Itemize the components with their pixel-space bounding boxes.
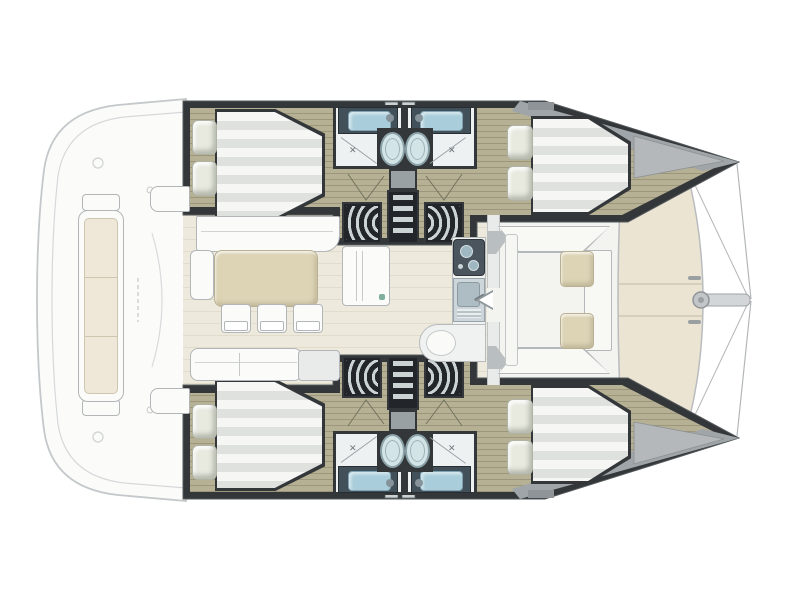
port-fwd-shower-drain-icon: ✕ xyxy=(448,146,456,155)
catamaran-floorplan: ✕ ✕ ✕ ✕ xyxy=(0,0,800,600)
cabinet-divider-2 xyxy=(362,251,363,301)
salon-aft-sofa xyxy=(190,348,302,381)
nav-seat xyxy=(298,350,340,381)
port-companionway-landing xyxy=(389,169,417,190)
cleat-lower xyxy=(688,320,701,324)
port-fwd-toilet xyxy=(405,132,430,166)
starboard-companionway-landing xyxy=(389,410,417,431)
starboard-ladder-rungs xyxy=(393,361,413,405)
starboard-fwd-pillow-2 xyxy=(507,440,533,475)
cabinet-latch xyxy=(379,294,385,300)
galley-dish-rack xyxy=(457,309,481,318)
door-arrow-icon xyxy=(479,292,493,308)
dinette-sofa-arm xyxy=(190,250,214,300)
starboard-deck-hatch xyxy=(528,490,554,498)
starboard-fwd-toilet xyxy=(405,434,430,468)
bench-cushion-seam-2 xyxy=(85,336,117,337)
galley-stove xyxy=(453,239,485,276)
port-aft-pillow-1 xyxy=(192,120,217,155)
starboard-curved-steps-aft xyxy=(342,356,382,398)
cleat-upper xyxy=(688,276,701,280)
stove-knob xyxy=(458,264,463,269)
starboard-fwd-sink xyxy=(420,471,463,491)
aft-sofa-divider-1 xyxy=(239,353,240,376)
port-aft-toilet xyxy=(380,132,405,166)
port-aft-berth xyxy=(215,109,325,221)
starboard-aft-duvet xyxy=(217,382,322,488)
starboard-companionway-ladder xyxy=(387,356,419,410)
port-ladder-rungs xyxy=(393,195,413,239)
galley-low-counter xyxy=(419,324,486,362)
dining-chair-1 xyxy=(221,304,251,333)
starboard-curved-steps-fwd-slats xyxy=(428,360,460,394)
port-fwd-duvet xyxy=(533,119,628,212)
starboard-fwd-faucet-icon xyxy=(415,479,423,487)
dining-table xyxy=(214,250,318,307)
starboard-aft-toilet xyxy=(380,434,405,468)
swim-step-port xyxy=(150,186,190,212)
starboard-aft-sink xyxy=(348,471,391,491)
starboard-curved-steps-aft-slats xyxy=(346,360,378,394)
port-fwd-pillow-1 xyxy=(507,125,533,160)
starboard-curved-steps-fwd xyxy=(424,356,464,398)
starboard-fwd-pillow-1 xyxy=(507,399,533,434)
port-curved-steps-aft-slats xyxy=(346,206,378,240)
port-fwd-pillow-2 xyxy=(507,166,533,201)
starboard-aft-berth xyxy=(215,379,325,491)
aft-bench-cushion xyxy=(84,218,118,394)
port-aft-duvet xyxy=(217,112,322,218)
dining-chair-2 xyxy=(257,304,287,333)
counter-round-basin xyxy=(426,330,456,356)
port-companionway-ladder xyxy=(387,190,419,244)
aft-bench-end-top xyxy=(82,194,120,211)
aft-bench xyxy=(78,210,124,402)
aft-sofa-seam xyxy=(195,362,297,363)
bowsprit-pin xyxy=(698,297,704,303)
starboard-aft-pillow-2 xyxy=(192,445,217,480)
dining-chair-3 xyxy=(293,304,323,333)
swim-step-starboard xyxy=(150,388,190,414)
starboard-fwd-duvet xyxy=(533,388,628,481)
starboard-aft-pillow-1 xyxy=(192,404,217,439)
bench-cushion-seam-1 xyxy=(85,277,117,278)
dinette-sofa xyxy=(196,216,340,252)
port-curved-steps-aft xyxy=(342,202,382,244)
port-aft-pillow-2 xyxy=(192,161,217,196)
salon-cabinet xyxy=(342,246,390,306)
cabinet-divider-1 xyxy=(356,251,357,301)
port-aft-faucet-icon xyxy=(386,114,394,122)
port-deck-hatch xyxy=(528,102,554,110)
dinette-sofa-seam xyxy=(201,231,333,232)
starboard-aft-faucet-icon xyxy=(386,479,394,487)
cockpit-side-bench xyxy=(505,234,518,366)
starboard-aft-shower-drain-icon: ✕ xyxy=(349,444,357,453)
cockpit-cushion-1 xyxy=(560,251,594,287)
cockpit-cushion-2 xyxy=(560,313,594,349)
port-fwd-faucet-icon xyxy=(415,114,423,122)
stove-burner-1 xyxy=(460,245,473,258)
starboard-fwd-shower-drain-icon: ✕ xyxy=(448,444,456,453)
port-aft-shower-drain-icon: ✕ xyxy=(349,146,357,155)
port-curved-steps-fwd-slats xyxy=(428,206,460,240)
stove-burner-2 xyxy=(468,260,479,271)
